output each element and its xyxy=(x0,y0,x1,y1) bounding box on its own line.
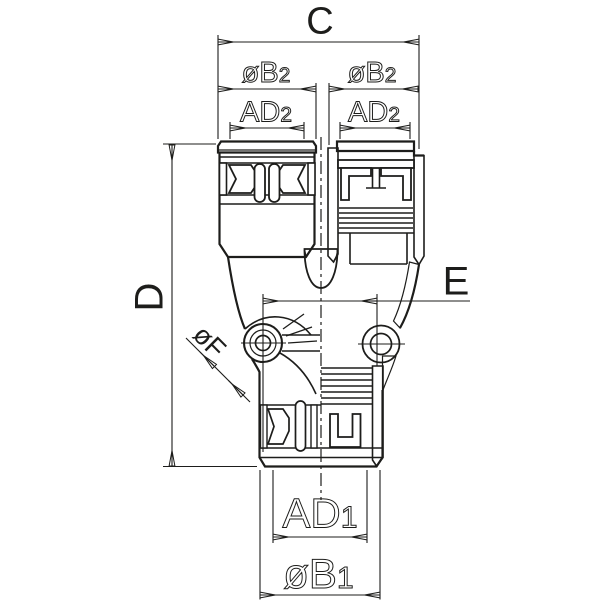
elbow-under-curve xyxy=(280,353,316,394)
y-fitting-drawing: C øB2 øB2 AD2 AD2 D xyxy=(0,0,600,600)
collet-rail xyxy=(311,405,317,448)
gripper-stack-bottom-port xyxy=(321,368,373,398)
section-wall-right xyxy=(414,156,424,265)
collet-jaw-right xyxy=(277,165,305,193)
label-e: E xyxy=(443,260,470,304)
dimensions: C øB2 øB2 AD2 AD2 D xyxy=(128,1,471,600)
section-wall-left xyxy=(328,148,338,262)
dimension-f: øF xyxy=(186,319,250,402)
sleeve-hook-right xyxy=(381,168,411,200)
collet-pin xyxy=(296,401,306,451)
top-right-port-section xyxy=(328,142,424,265)
sleeve-hook-left xyxy=(341,168,371,200)
bottom-port xyxy=(252,359,383,467)
label-b2-right: øB2 xyxy=(348,57,397,89)
sleeve-channel-section xyxy=(330,414,361,447)
collet-jaw xyxy=(268,409,289,444)
label-b2-left: øB2 xyxy=(242,57,291,89)
release-button-right xyxy=(337,142,414,152)
sleeve-top-bar xyxy=(338,160,414,168)
label-c: C xyxy=(306,1,333,43)
label-ad1: AD1 xyxy=(282,490,357,537)
collet-rail xyxy=(220,163,227,195)
label-b1: øB1 xyxy=(283,550,354,597)
collet-pin xyxy=(255,164,266,202)
collet-rail xyxy=(308,163,315,195)
label-f: øF xyxy=(187,319,232,364)
fitting-body xyxy=(218,137,424,500)
collet-jaw-left xyxy=(229,165,257,193)
collet-pin xyxy=(269,164,280,202)
left-flank xyxy=(228,257,245,329)
dimension-ad2-right: AD2 xyxy=(340,97,410,140)
label-d: D xyxy=(128,283,172,312)
gripper-stack-right-port xyxy=(338,208,414,233)
label-ad2-right: AD2 xyxy=(348,97,400,129)
top-left-port xyxy=(218,142,316,258)
label-ad2-left: AD2 xyxy=(240,97,292,129)
right-flank-section-band xyxy=(394,262,420,328)
release-button-left xyxy=(218,142,316,153)
dimension-ad2-left: AD2 xyxy=(230,97,304,140)
technical-drawing: C øB2 øB2 AD2 AD2 D xyxy=(0,0,600,600)
dimension-ad1: AD1 xyxy=(273,470,367,543)
collet-rail xyxy=(261,405,268,448)
bore-step xyxy=(350,233,407,264)
